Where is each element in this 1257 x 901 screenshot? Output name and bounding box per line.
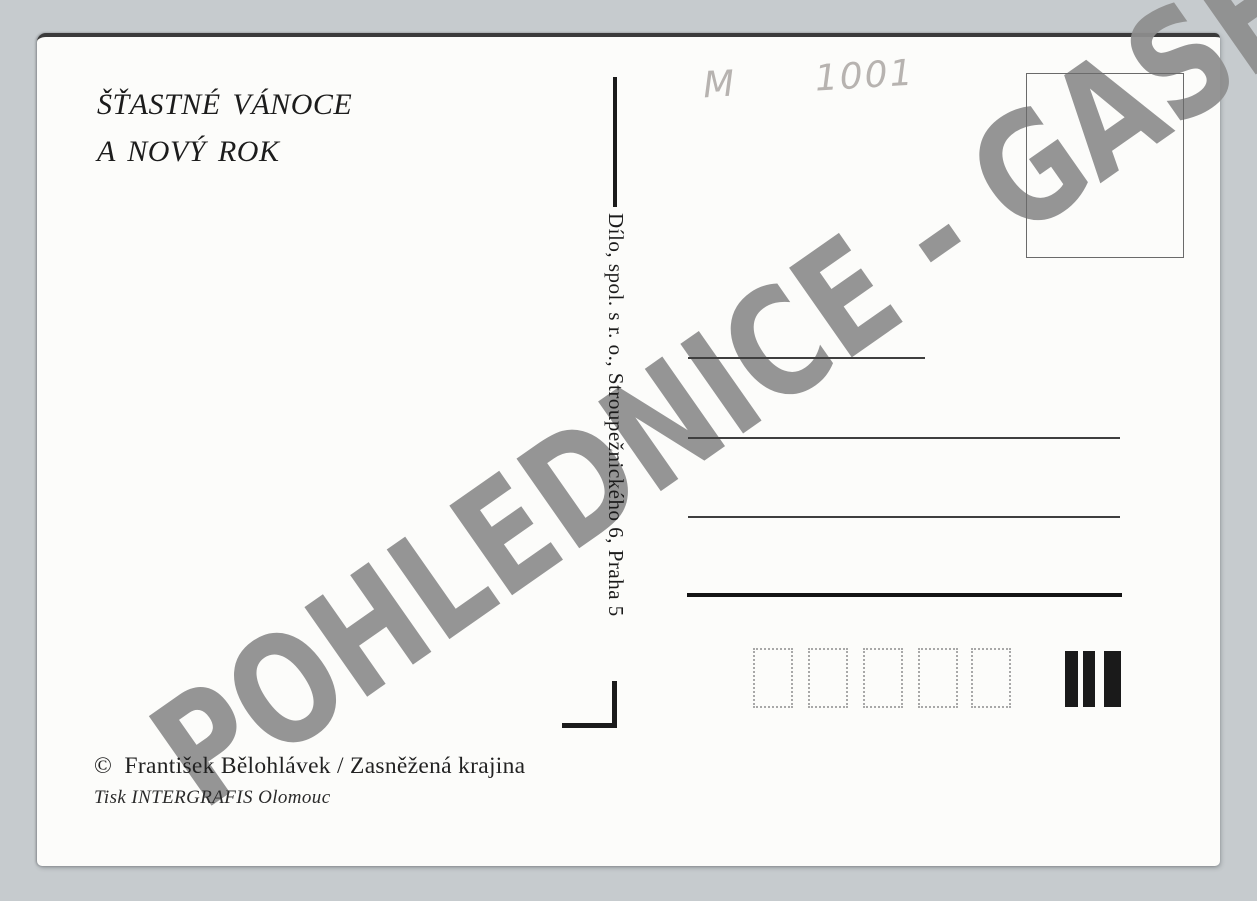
postal-code-box-4 [918, 648, 958, 708]
scanner-background: POHLEDNICE - GASH ŠŤASTNÉ VÁNOCE A NOVÝ … [0, 0, 1257, 901]
sorting-bar-1 [1065, 651, 1078, 707]
handwritten-inventory-number: M 1001 [702, 53, 916, 107]
divider-corner-mark [562, 681, 617, 728]
address-line-3 [688, 516, 1120, 518]
postcard-content: ŠŤASTNÉ VÁNOCE A NOVÝ ROK M 1001 Dílo, s… [37, 37, 1220, 866]
sorting-bar-2 [1083, 651, 1095, 707]
greeting-line1: ŠŤASTNÉ VÁNOCE [97, 81, 352, 128]
postcard-back: POHLEDNICE - GASH ŠŤASTNÉ VÁNOCE A NOVÝ … [37, 33, 1220, 866]
greeting-block: ŠŤASTNÉ VÁNOCE A NOVÝ ROK [97, 81, 352, 175]
publisher-address-vertical: Dílo, spol. s r. o., Stroupežnického 6, … [602, 213, 628, 617]
copyright-artist-title: © František Bělohlávek / Zasněžená kraji… [94, 753, 525, 780]
address-line-4 [687, 593, 1122, 597]
postal-code-box-3 [863, 648, 903, 708]
greeting-line2: A NOVÝ ROK [97, 128, 352, 175]
postal-code-box-1 [753, 648, 793, 708]
printer-credit: Tisk INTERGRAFIS Olomouc [94, 787, 331, 809]
address-line-1 [688, 357, 925, 359]
postal-code-box-2 [808, 648, 848, 708]
address-line-2 [688, 437, 1120, 439]
stamp-box [1026, 73, 1184, 258]
divider-line [613, 77, 617, 207]
postal-code-box-5 [971, 648, 1011, 708]
sorting-bar-3 [1104, 651, 1121, 707]
